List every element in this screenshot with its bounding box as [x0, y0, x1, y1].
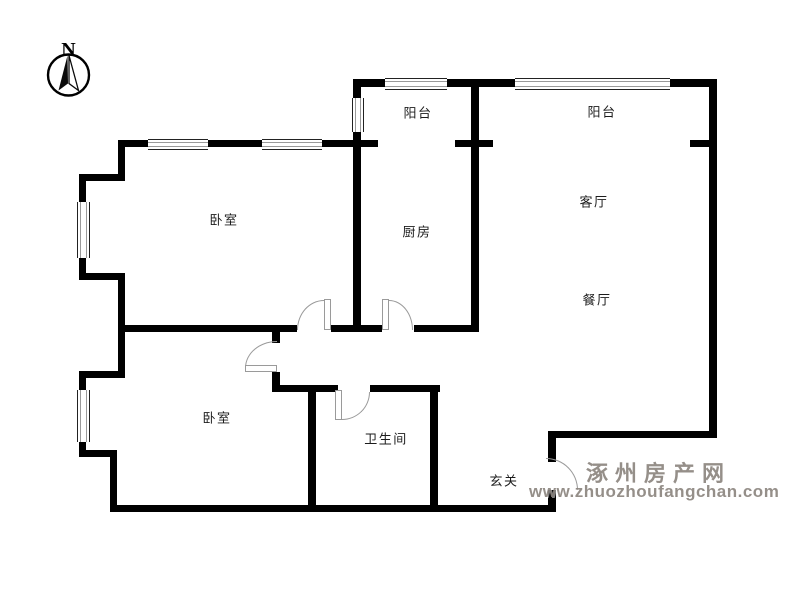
floor-plan-canvas: N 阳台阳台卧室厨房客厅餐厅卧室卫生间玄关 涿州房产网 www.zhuozhou… — [0, 0, 800, 600]
wall-segment — [548, 431, 717, 438]
bedroom-bottom-door-swing-arc — [245, 341, 277, 368]
wall-segment — [447, 79, 515, 87]
north-compass-icon: N — [38, 25, 100, 103]
window-marker — [352, 98, 364, 132]
wall-segment — [690, 140, 717, 147]
wall-segment — [414, 325, 479, 332]
room-label-living-room: 客厅 — [579, 192, 608, 211]
wall-segment — [322, 140, 378, 147]
wall-segment — [208, 140, 262, 147]
wall-segment — [79, 273, 122, 280]
kitchen-door-leaf — [382, 299, 389, 330]
bedroom-top-door-leaf — [324, 299, 331, 330]
wall-segment — [471, 79, 479, 332]
wall-segment — [455, 140, 493, 147]
window-marker — [515, 78, 670, 90]
wall-segment — [79, 174, 86, 202]
wall-segment — [272, 385, 338, 392]
room-label-bedroom-top: 卧室 — [209, 210, 238, 229]
wall-segment — [118, 325, 297, 332]
wall-segment — [79, 371, 86, 390]
room-label-bathroom: 卫生间 — [364, 429, 408, 448]
bedroom-bottom-door-leaf — [245, 365, 277, 372]
wall-segment — [709, 79, 717, 438]
wall-segment — [331, 325, 382, 332]
bathroom-door-leaf — [335, 390, 342, 420]
wall-segment — [430, 388, 438, 512]
window-marker — [148, 139, 208, 150]
bathroom-door-swing-arc — [342, 392, 370, 420]
kitchen-door-swing-arc — [389, 300, 413, 330]
wall-segment — [308, 385, 316, 512]
wall-segment — [110, 505, 556, 512]
room-label-bedroom-bottom: 卧室 — [202, 408, 231, 427]
room-label-balcony-small: 阳台 — [403, 103, 432, 122]
window-marker — [77, 390, 90, 442]
bedroom-top-door-swing-arc — [297, 300, 324, 330]
room-label-balcony-large: 阳台 — [587, 102, 616, 121]
room-label-entry-hall: 玄关 — [489, 471, 518, 490]
room-label-kitchen: 厨房 — [402, 222, 431, 241]
window-marker — [262, 139, 322, 150]
wall-segment — [110, 450, 117, 512]
window-marker — [77, 202, 90, 258]
wall-segment — [353, 132, 361, 332]
wall-segment — [353, 79, 361, 98]
watermark-site-url: www.zhuozhoufangchan.com — [529, 482, 779, 502]
room-label-dining-room: 餐厅 — [582, 290, 611, 309]
window-marker — [385, 78, 447, 90]
